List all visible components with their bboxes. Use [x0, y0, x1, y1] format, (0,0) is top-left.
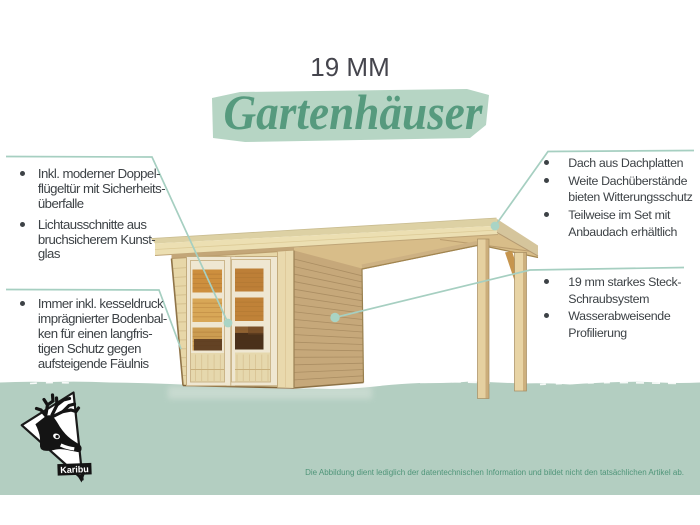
svg-text:Karibu: Karibu [60, 464, 89, 475]
